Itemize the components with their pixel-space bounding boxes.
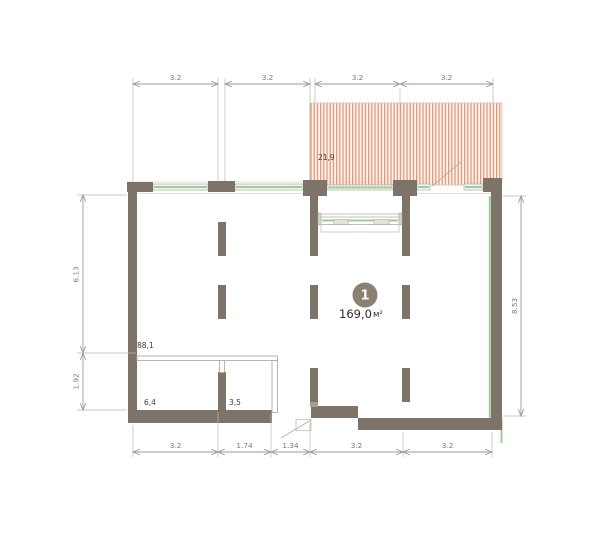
terrace-area: 21,9: [310, 89, 502, 186]
left-wall: [128, 183, 137, 423]
entry-door-assembly: [318, 213, 402, 232]
total-area-unit: м²: [373, 310, 383, 320]
dim-bottom-4: 3.2: [351, 441, 363, 450]
column: [402, 368, 410, 402]
dim-top-1: 3.2: [170, 73, 182, 82]
dim-top-3: 3.2: [352, 73, 364, 82]
terrace-area-label: 21,9: [318, 153, 335, 162]
dim-bottom-5: 3.2: [442, 441, 454, 450]
entry-pier-left-top: [303, 180, 327, 196]
dimensions-right: 8.53: [503, 196, 526, 416]
partition-vertical-mid: [220, 361, 225, 373]
bottom-wall-lower: [358, 418, 502, 430]
door-jamb-right: [399, 213, 402, 225]
dim-right-1: 8.53: [510, 298, 519, 315]
door-jamb-left: [318, 213, 321, 225]
partition-horizontal: [137, 356, 278, 361]
dim-top-4: 3.2: [441, 73, 453, 82]
right-wall: [491, 190, 502, 430]
dim-bottom-1: 3.2: [170, 441, 182, 450]
entry-recess-outline: [321, 226, 399, 233]
column: [218, 372, 226, 410]
windows: [153, 184, 502, 443]
bottom-entry-door: [281, 420, 311, 439]
dimensions-left: 6.13 1.92: [72, 195, 137, 410]
column: [218, 285, 226, 319]
dim-top-2: 3.2: [262, 73, 274, 82]
column: [310, 368, 318, 406]
column: [310, 285, 318, 319]
top-left-corner: [127, 182, 153, 192]
total-area-value: 169,0: [339, 307, 372, 321]
dim-bottom-3: 1.34: [282, 441, 299, 450]
entry-pier-right-leg: [402, 196, 410, 256]
entry-pier-left-leg: [310, 196, 318, 256]
lower-right-room-label: 3,5: [229, 398, 241, 407]
walls: [127, 178, 502, 430]
column: [218, 222, 226, 256]
partitions: [137, 356, 278, 413]
dim-left-2: 1.92: [72, 373, 81, 389]
dim-left-1: 6.13: [72, 266, 81, 283]
unit-badge: 1 169,0 м²: [339, 283, 383, 322]
room-number: 1: [360, 289, 369, 304]
top-right-corner: [483, 178, 502, 192]
top-wall-pier: [208, 181, 235, 192]
upper-zone-area-label: 88,1: [137, 341, 154, 350]
door-panel-right: [374, 220, 389, 225]
terrace-hatch: [310, 103, 502, 185]
door-panel-left: [334, 220, 348, 225]
lower-left-room-label: 6,4: [144, 398, 156, 407]
floor-plan-svg: 21,9: [0, 0, 600, 533]
bottom-left-wall: [128, 410, 272, 423]
bottom-wall-step-upper: [311, 406, 358, 418]
extension-lines: [77, 195, 136, 410]
wall-joint-block: [310, 402, 318, 407]
column: [402, 285, 410, 319]
dim-bottom-2: 1.74: [236, 441, 253, 450]
partition-vertical-right: [272, 361, 278, 413]
floor-plan-canvas: 21,9: [0, 0, 600, 533]
entry-pier-right-top: [393, 180, 417, 196]
